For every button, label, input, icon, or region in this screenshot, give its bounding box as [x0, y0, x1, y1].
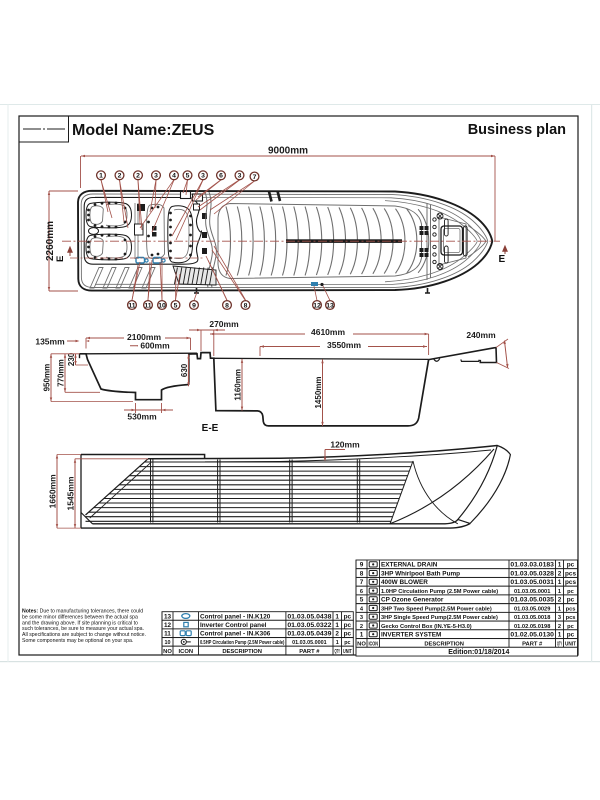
- svg-text:2: 2: [136, 173, 140, 180]
- svg-text:10: 10: [158, 302, 166, 309]
- svg-text:2: 2: [118, 173, 122, 180]
- svg-text:pc: pc: [567, 632, 575, 639]
- svg-text:DESCRIPTION: DESCRIPTION: [222, 649, 262, 655]
- svg-text:Control panel - IN.K306: Control panel - IN.K306: [200, 631, 271, 638]
- svg-text:01.03.05.0438: 01.03.05.0438: [287, 613, 332, 620]
- svg-text:pcs: pcs: [565, 579, 576, 586]
- svg-text:01.03.05.0031: 01.03.05.0031: [510, 579, 554, 586]
- svg-text:1450mm: 1450mm: [314, 376, 323, 408]
- svg-text:1: 1: [335, 613, 339, 620]
- svg-text:1: 1: [558, 562, 562, 569]
- svg-text:3HP Two Speed Pump(2.5M Power: 3HP Two Speed Pump(2.5M Power cable): [381, 606, 492, 612]
- svg-text:pc: pc: [567, 562, 575, 569]
- svg-text:Control panel - IN.K120: Control panel - IN.K120: [200, 613, 271, 620]
- svg-text:PART #: PART #: [522, 641, 543, 647]
- svg-text:120mm: 120mm: [330, 440, 360, 450]
- svg-text:3HP Whirlpool Bath Pump: 3HP Whirlpool Bath Pump: [381, 571, 460, 578]
- svg-text:Model Name:ZEUS: Model Name:ZEUS: [72, 122, 215, 139]
- svg-text:pc: pc: [344, 613, 352, 620]
- svg-text:1: 1: [558, 632, 562, 639]
- svg-text:pcs: pcs: [565, 571, 576, 578]
- svg-text:ICON: ICON: [179, 649, 194, 655]
- svg-text:1.0HP Circulation Pump (2.5M P: 1.0HP Circulation Pump (2.5M Power cable…: [381, 589, 498, 595]
- svg-text:PART #: PART #: [299, 649, 320, 655]
- svg-text:11: 11: [128, 302, 135, 309]
- svg-text:630: 630: [180, 363, 189, 377]
- svg-text:EXTERNAL DRAIN: EXTERNAL DRAIN: [381, 562, 438, 569]
- svg-text:E: E: [55, 256, 66, 262]
- svg-text:pc: pc: [344, 622, 352, 629]
- svg-text:pcs: pcs: [566, 606, 576, 612]
- svg-text:2260mm: 2260mm: [45, 221, 56, 261]
- svg-text:01.03.05.0035: 01.03.05.0035: [510, 597, 554, 604]
- svg-text:01.03.05.0328: 01.03.05.0328: [510, 571, 554, 578]
- svg-text:Edition:01/18/2014: Edition:01/18/2014: [448, 649, 509, 656]
- svg-text:12: 12: [313, 302, 321, 309]
- svg-text:2: 2: [558, 624, 561, 630]
- svg-text:1: 1: [360, 632, 364, 639]
- svg-text:INVERTER SYSTEM: INVERTER SYSTEM: [381, 632, 441, 639]
- svg-text:01.02.05.0130: 01.02.05.0130: [510, 632, 554, 639]
- svg-text:01.03.05.0001: 01.03.05.0001: [514, 589, 550, 595]
- svg-text:9: 9: [360, 562, 364, 569]
- svg-text:12: 12: [164, 622, 172, 629]
- svg-text:01.03.05.0018: 01.03.05.0018: [514, 615, 550, 621]
- svg-text:pc: pc: [567, 589, 574, 595]
- svg-text:NO: NO: [163, 649, 172, 655]
- svg-text:8: 8: [360, 571, 364, 578]
- svg-text:600mm: 600mm: [140, 341, 170, 351]
- svg-text:6: 6: [219, 173, 223, 180]
- svg-text:10: 10: [165, 640, 171, 646]
- svg-text:11: 11: [164, 631, 171, 638]
- svg-text:9000mm: 9000mm: [268, 146, 308, 157]
- svg-text:QTY: QTY: [557, 641, 562, 647]
- svg-text:3: 3: [201, 173, 205, 180]
- svg-text:QTY: QTY: [334, 649, 340, 655]
- svg-text:pc: pc: [344, 640, 350, 646]
- svg-text:1545mm: 1545mm: [66, 476, 76, 510]
- svg-text:9: 9: [192, 302, 196, 309]
- svg-text:11: 11: [144, 302, 151, 309]
- svg-text:0.5HP Circulation Pump (2.5M P: 0.5HP Circulation Pump (2.5M Power cable…: [200, 640, 285, 646]
- svg-text:3: 3: [238, 173, 242, 180]
- svg-text:Inverter Control panel: Inverter Control panel: [200, 622, 267, 629]
- svg-text:01.02.05.0198: 01.02.05.0198: [514, 624, 550, 630]
- svg-text:8: 8: [244, 302, 248, 309]
- svg-text:01.03.05.0029: 01.03.05.0029: [514, 606, 550, 612]
- svg-text:1: 1: [335, 622, 339, 629]
- svg-text:1: 1: [558, 589, 561, 595]
- svg-text:3: 3: [558, 615, 561, 621]
- svg-text:3: 3: [360, 615, 363, 621]
- svg-text:Some components may be optiona: Some components may be optional on your …: [22, 638, 133, 644]
- svg-text:2: 2: [558, 571, 562, 578]
- svg-text:2: 2: [335, 631, 339, 638]
- svg-text:01.03.05.0001: 01.03.05.0001: [292, 640, 326, 646]
- svg-text:E-E: E-E: [202, 423, 219, 434]
- svg-text:1660mm: 1660mm: [48, 474, 58, 508]
- svg-text:7: 7: [360, 579, 364, 586]
- svg-text:240mm: 240mm: [466, 330, 496, 340]
- svg-text:4: 4: [172, 173, 176, 180]
- svg-text:DESCRIPTION: DESCRIPTION: [424, 641, 464, 647]
- svg-text:ICON: ICON: [368, 641, 378, 647]
- svg-text:01.03.03.0183: 01.03.03.0183: [510, 562, 554, 569]
- svg-text:E: E: [499, 254, 506, 265]
- svg-text:530mm: 530mm: [127, 412, 157, 422]
- svg-text:2: 2: [360, 624, 363, 630]
- svg-text:3HP Single Speed Pump(2.5M Pow: 3HP Single Speed Pump(2.5M Power cable): [381, 615, 498, 621]
- svg-text:01.03.05.0439: 01.03.05.0439: [287, 631, 332, 638]
- svg-text:1: 1: [336, 640, 339, 646]
- svg-text:UNIT: UNIT: [565, 641, 576, 647]
- svg-text:NO: NO: [357, 641, 366, 647]
- svg-text:5: 5: [186, 173, 190, 180]
- svg-text:UNIT: UNIT: [343, 649, 352, 655]
- svg-text:pc: pc: [344, 631, 352, 638]
- svg-text:3: 3: [154, 173, 158, 180]
- svg-text:Business plan: Business plan: [468, 122, 566, 138]
- svg-text:3550mm: 3550mm: [327, 340, 361, 350]
- svg-text:2: 2: [558, 597, 562, 604]
- svg-text:400W BLOWER: 400W BLOWER: [381, 579, 428, 586]
- svg-text:5: 5: [360, 597, 364, 604]
- svg-text:230: 230: [67, 352, 76, 366]
- svg-text:270mm: 270mm: [209, 319, 239, 329]
- svg-text:7: 7: [253, 174, 257, 181]
- svg-text:8: 8: [225, 302, 229, 309]
- svg-text:1160mm: 1160mm: [234, 369, 243, 401]
- svg-text:5: 5: [174, 302, 178, 309]
- svg-text:770mm: 770mm: [57, 359, 66, 387]
- svg-text:6: 6: [360, 589, 363, 595]
- svg-text:13: 13: [164, 613, 172, 620]
- svg-text:4610mm: 4610mm: [311, 327, 345, 337]
- svg-text:CP Ozone Generator: CP Ozone Generator: [381, 597, 444, 604]
- svg-text:pc: pc: [567, 597, 575, 604]
- svg-text:pcs: pcs: [566, 615, 576, 621]
- svg-text:135mm: 135mm: [35, 337, 65, 347]
- svg-text:Gecko Control Box (IN.YE-5-H3.: Gecko Control Box (IN.YE-5-H3.0): [381, 624, 472, 630]
- svg-text:1: 1: [99, 173, 103, 180]
- svg-text:1: 1: [558, 606, 561, 612]
- svg-text:1: 1: [558, 579, 562, 586]
- svg-text:pc: pc: [567, 624, 574, 630]
- svg-text:950mm: 950mm: [43, 364, 52, 392]
- svg-text:13: 13: [326, 302, 334, 309]
- svg-text:01.03.05.0322: 01.03.05.0322: [287, 622, 332, 629]
